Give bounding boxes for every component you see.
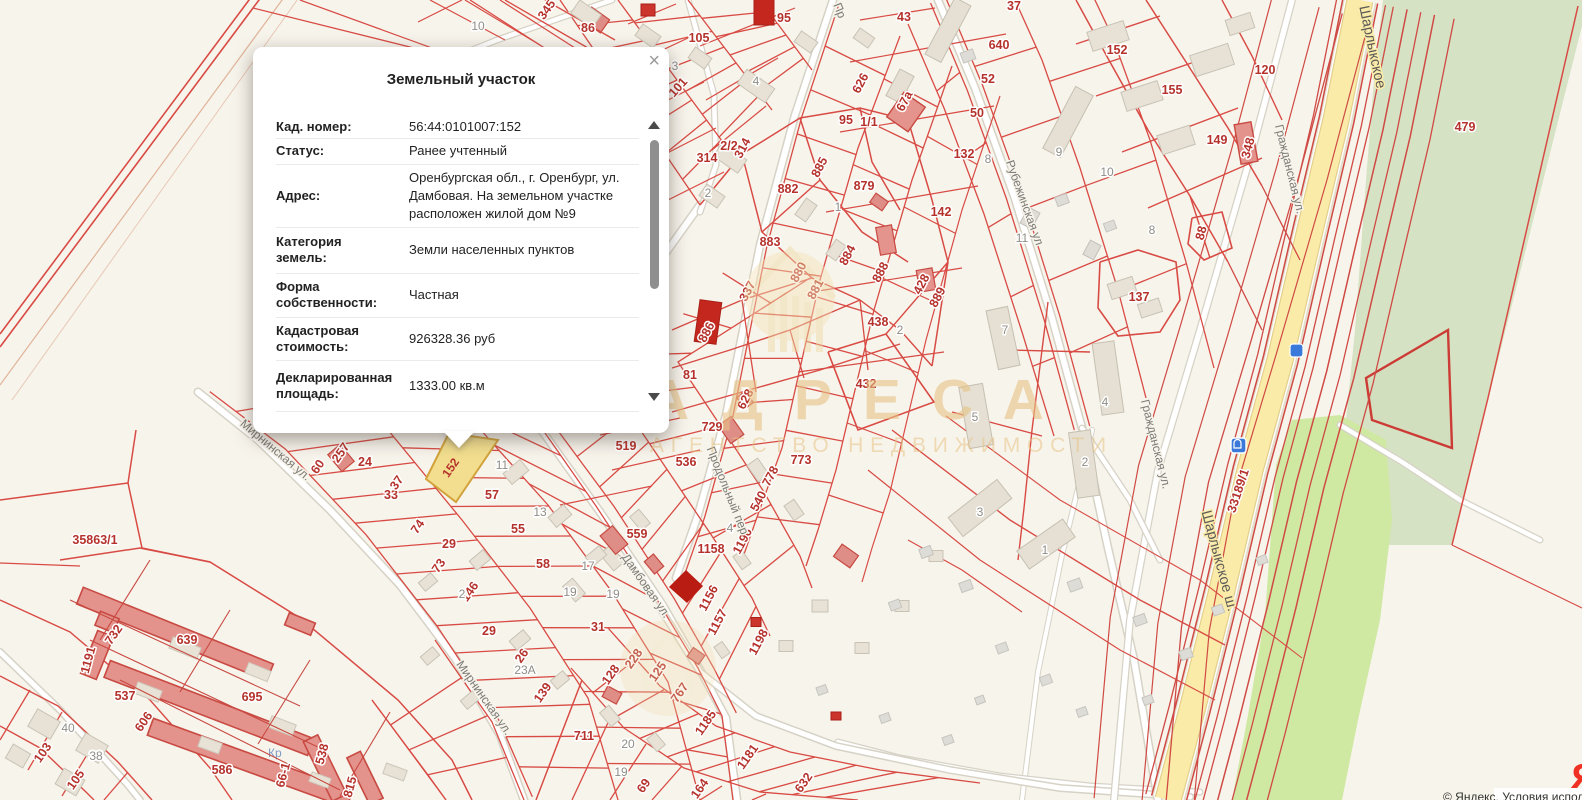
svg-text:7: 7 bbox=[1002, 323, 1009, 337]
svg-text:АДРЕСА: АДРЕСА bbox=[648, 368, 1075, 432]
svg-text:86: 86 bbox=[581, 21, 595, 35]
svg-text:2: 2 bbox=[897, 323, 904, 337]
svg-text:17: 17 bbox=[581, 559, 595, 573]
svg-text:8: 8 bbox=[1149, 223, 1156, 237]
svg-text:559: 559 bbox=[627, 527, 648, 541]
svg-text:19: 19 bbox=[563, 585, 577, 599]
svg-text:711: 711 bbox=[574, 729, 594, 743]
svg-text:24: 24 bbox=[358, 455, 372, 469]
svg-text:438: 438 bbox=[868, 315, 889, 329]
svg-text:519: 519 bbox=[616, 439, 637, 453]
svg-text:1: 1 bbox=[835, 200, 842, 214]
svg-text:1158: 1158 bbox=[697, 542, 724, 556]
svg-text:479: 479 bbox=[1455, 120, 1476, 134]
svg-text:11: 11 bbox=[1016, 231, 1029, 245]
svg-text:23А: 23А bbox=[514, 663, 535, 677]
svg-text:879: 879 bbox=[854, 179, 875, 193]
svg-text:882: 882 bbox=[778, 182, 799, 196]
svg-text:52: 52 bbox=[981, 72, 995, 86]
svg-text:3: 3 bbox=[672, 59, 679, 73]
svg-text:55: 55 bbox=[511, 522, 525, 536]
svg-text:35863/1: 35863/1 bbox=[72, 533, 117, 547]
svg-text:95: 95 bbox=[777, 11, 791, 25]
svg-text:50: 50 bbox=[970, 106, 984, 120]
svg-text:640: 640 bbox=[989, 38, 1010, 52]
svg-text:13: 13 bbox=[533, 505, 547, 519]
svg-text:57: 57 bbox=[485, 488, 499, 502]
svg-text:10: 10 bbox=[471, 19, 485, 33]
svg-text:© Яндекс, Условия испол: © Яндекс, Условия испол bbox=[1443, 790, 1582, 800]
svg-text:29: 29 bbox=[482, 624, 496, 638]
svg-text:152: 152 bbox=[1107, 43, 1128, 57]
svg-text:1/1: 1/1 bbox=[860, 115, 877, 129]
svg-text:1: 1 bbox=[1042, 543, 1049, 557]
svg-text:4: 4 bbox=[753, 74, 760, 88]
svg-text:40: 40 bbox=[61, 721, 75, 735]
svg-text:314: 314 bbox=[697, 151, 718, 165]
svg-text:31: 31 bbox=[591, 620, 605, 634]
svg-text:536: 536 bbox=[676, 455, 697, 469]
svg-text:695: 695 bbox=[242, 690, 263, 704]
svg-text:2: 2 bbox=[1082, 455, 1089, 469]
svg-text:9: 9 bbox=[1056, 145, 1063, 159]
svg-text:3: 3 bbox=[977, 505, 984, 519]
svg-text:537: 537 bbox=[115, 689, 136, 703]
svg-text:2: 2 bbox=[705, 186, 712, 200]
svg-text:19: 19 bbox=[606, 587, 620, 601]
svg-text:95: 95 bbox=[839, 113, 853, 127]
svg-text:10: 10 bbox=[1100, 165, 1114, 179]
svg-text:155: 155 bbox=[1162, 83, 1183, 97]
svg-text:149: 149 bbox=[1207, 133, 1228, 147]
svg-text:4: 4 bbox=[1102, 395, 1109, 409]
svg-text:38: 38 bbox=[89, 749, 103, 763]
svg-text:8: 8 bbox=[985, 152, 992, 166]
svg-text:37: 37 bbox=[1007, 0, 1021, 13]
svg-text:639: 639 bbox=[177, 633, 198, 647]
svg-text:58: 58 bbox=[536, 557, 550, 571]
svg-text:132: 132 bbox=[954, 147, 975, 161]
svg-text:19: 19 bbox=[614, 765, 628, 779]
svg-text:120: 120 bbox=[1255, 63, 1276, 77]
svg-text:43: 43 bbox=[897, 10, 911, 24]
svg-text:137: 137 bbox=[1129, 290, 1150, 304]
svg-text:142: 142 bbox=[931, 205, 952, 219]
svg-text:11: 11 bbox=[496, 458, 509, 472]
svg-text:2: 2 bbox=[459, 587, 466, 601]
svg-text:29: 29 bbox=[442, 537, 456, 551]
svg-text:105: 105 bbox=[689, 31, 710, 45]
svg-text:586: 586 bbox=[212, 763, 233, 777]
svg-text:АГЕНТСТВО НЕДВИЖИМОСТИ: АГЕНТСТВО НЕДВИЖИМОСТИ bbox=[650, 434, 1113, 457]
svg-text:20: 20 bbox=[621, 737, 635, 751]
svg-text:883: 883 bbox=[760, 235, 781, 249]
svg-text:4: 4 bbox=[727, 521, 734, 535]
